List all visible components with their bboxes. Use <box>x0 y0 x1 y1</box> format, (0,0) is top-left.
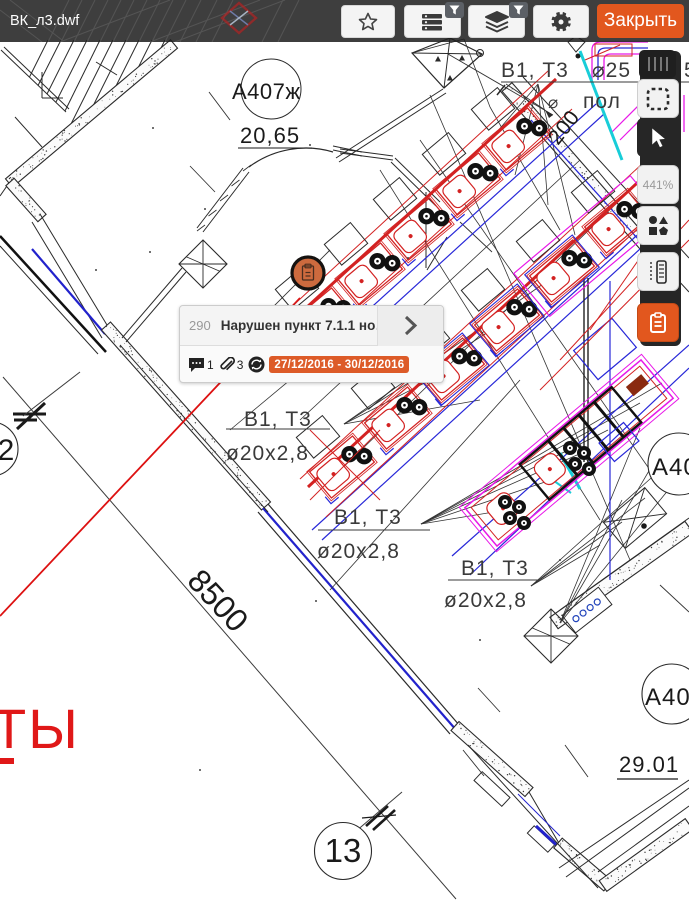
svg-text:В1, Т3: В1, Т3 <box>461 557 529 580</box>
svg-text:ø20х2,8: ø20х2,8 <box>226 442 309 465</box>
svg-text:В1, Т3: В1, Т3 <box>244 408 312 431</box>
svg-text:ø20х2,8: ø20х2,8 <box>317 540 400 563</box>
svg-text:А40: А40 <box>645 684 689 711</box>
svg-text:13: 13 <box>325 832 362 869</box>
svg-text:пол: пол <box>583 90 621 113</box>
svg-text:ТЫ: ТЫ <box>0 697 80 760</box>
svg-text:20,65: 20,65 <box>240 123 300 148</box>
svg-text:⌀: ⌀ <box>548 93 559 112</box>
svg-text:⌀25: ⌀25 <box>592 59 631 82</box>
svg-text:29.01: 29.01 <box>619 752 679 777</box>
svg-text:В1, Т3: В1, Т3 <box>501 59 569 82</box>
svg-text:В1, Т3: В1, Т3 <box>334 506 402 529</box>
svg-text:А407ж: А407ж <box>232 79 301 104</box>
svg-text:5: 5 <box>684 59 689 82</box>
svg-text:А40: А40 <box>652 454 689 481</box>
svg-text:2: 2 <box>0 434 14 467</box>
svg-text:ø20х2,8: ø20х2,8 <box>444 589 527 612</box>
